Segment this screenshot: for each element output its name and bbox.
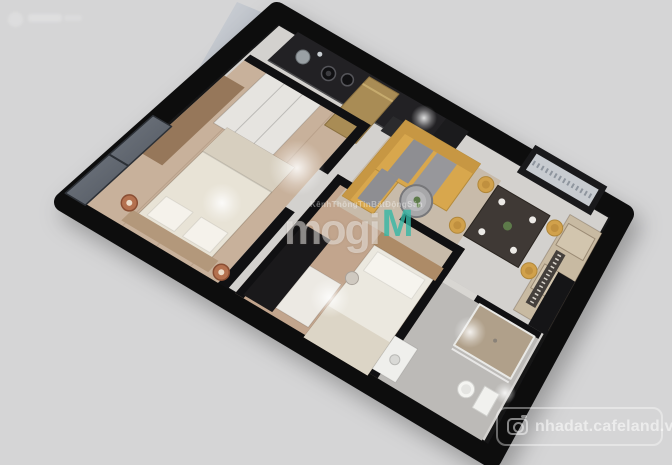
plate-2 — [478, 228, 485, 235]
apartment-3d-floorplan — [0, 0, 672, 465]
burner-1-core — [326, 71, 332, 77]
plate-3 — [529, 216, 536, 223]
dining-chair-3-seat — [551, 224, 559, 232]
floorplan-photo-page: { "background_color": "#d5d5d6", "render… — [0, 0, 672, 465]
dining-chair-1-seat — [482, 181, 490, 189]
plate-4 — [510, 247, 517, 254]
faint-logo-watermark — [8, 10, 86, 32]
dining-chair-4-seat — [525, 267, 533, 275]
coffee-table-plant-2 — [416, 204, 420, 208]
camera-icon — [507, 418, 528, 435]
shower-drain — [493, 339, 497, 343]
faint-logo-text-bar-2 — [64, 15, 82, 21]
faint-logo-text-bar — [28, 14, 62, 22]
light-bloom-5 — [411, 105, 437, 131]
light-bloom-4 — [202, 183, 242, 223]
toilet-seat — [461, 384, 471, 394]
cafeland-watermark: nhadat.cafeland.vn — [496, 407, 663, 446]
floorplan-render-stage: KênhThôngTinBấtĐộngSản mogi M nhadat.caf… — [0, 0, 672, 465]
cafeland-watermark-text: nhadat.cafeland.vn — [535, 418, 672, 436]
plate-1 — [498, 198, 505, 205]
light-bloom-1 — [269, 140, 325, 196]
kitchen-sink — [296, 50, 310, 64]
kitchen-faucet — [317, 52, 322, 57]
burner-2 — [341, 74, 353, 86]
light-bloom-6 — [494, 382, 516, 404]
centerpiece-plant — [503, 222, 512, 231]
wash-basin — [390, 355, 400, 365]
faint-logo-glyph — [8, 12, 23, 27]
light-bloom-2 — [310, 278, 350, 318]
light-bloom-3 — [454, 316, 486, 348]
dining-chair-2-seat — [453, 221, 461, 229]
lamp-left — [126, 200, 132, 206]
lamp-right — [218, 269, 224, 275]
coffee-table-plant — [414, 197, 421, 204]
stool-bedroom2 — [346, 272, 359, 285]
